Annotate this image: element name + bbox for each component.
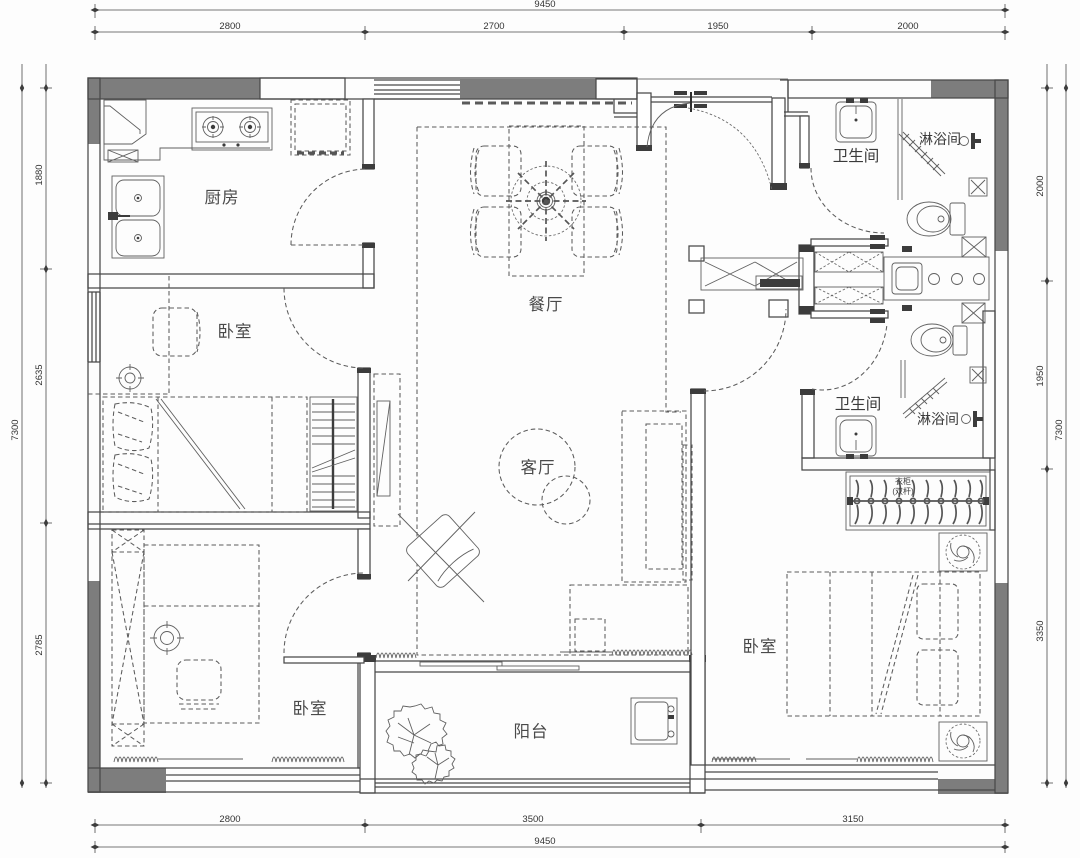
svg-text:阳台: 阳台 [514, 722, 549, 741]
svg-text:2800: 2800 [219, 21, 240, 32]
svg-text:(双杆): (双杆) [892, 486, 914, 496]
svg-text:3350: 3350 [1035, 620, 1046, 641]
svg-text:2700: 2700 [483, 21, 504, 32]
svg-text:1950: 1950 [707, 21, 728, 32]
svg-text:卧室: 卧室 [743, 637, 778, 656]
svg-text:厨房: 厨房 [205, 188, 240, 207]
svg-text:客厅: 客厅 [521, 458, 556, 477]
svg-text:淋浴间: 淋浴间 [919, 131, 961, 147]
svg-text:2785: 2785 [34, 634, 45, 655]
svg-text:卫生间: 卫生间 [835, 395, 882, 413]
svg-text:2800: 2800 [219, 814, 240, 825]
svg-text:9450: 9450 [534, 836, 555, 847]
svg-text:2000: 2000 [1035, 175, 1046, 196]
svg-text:卧室: 卧室 [293, 699, 328, 718]
svg-text:1880: 1880 [34, 164, 45, 185]
svg-text:卫生间: 卫生间 [833, 147, 880, 165]
svg-text:9450: 9450 [534, 0, 555, 10]
svg-text:3150: 3150 [842, 814, 863, 825]
svg-text:2000: 2000 [897, 21, 918, 32]
svg-text:3500: 3500 [522, 814, 543, 825]
svg-text:餐厅: 餐厅 [529, 295, 564, 314]
svg-text:淋浴间: 淋浴间 [917, 411, 959, 427]
svg-text:卧室: 卧室 [218, 322, 253, 341]
svg-text:衣柜: 衣柜 [895, 476, 911, 486]
svg-text:7300: 7300 [10, 419, 21, 440]
svg-text:1950: 1950 [1035, 365, 1046, 386]
svg-text:2635: 2635 [34, 364, 45, 385]
svg-text:7300: 7300 [1054, 419, 1065, 440]
